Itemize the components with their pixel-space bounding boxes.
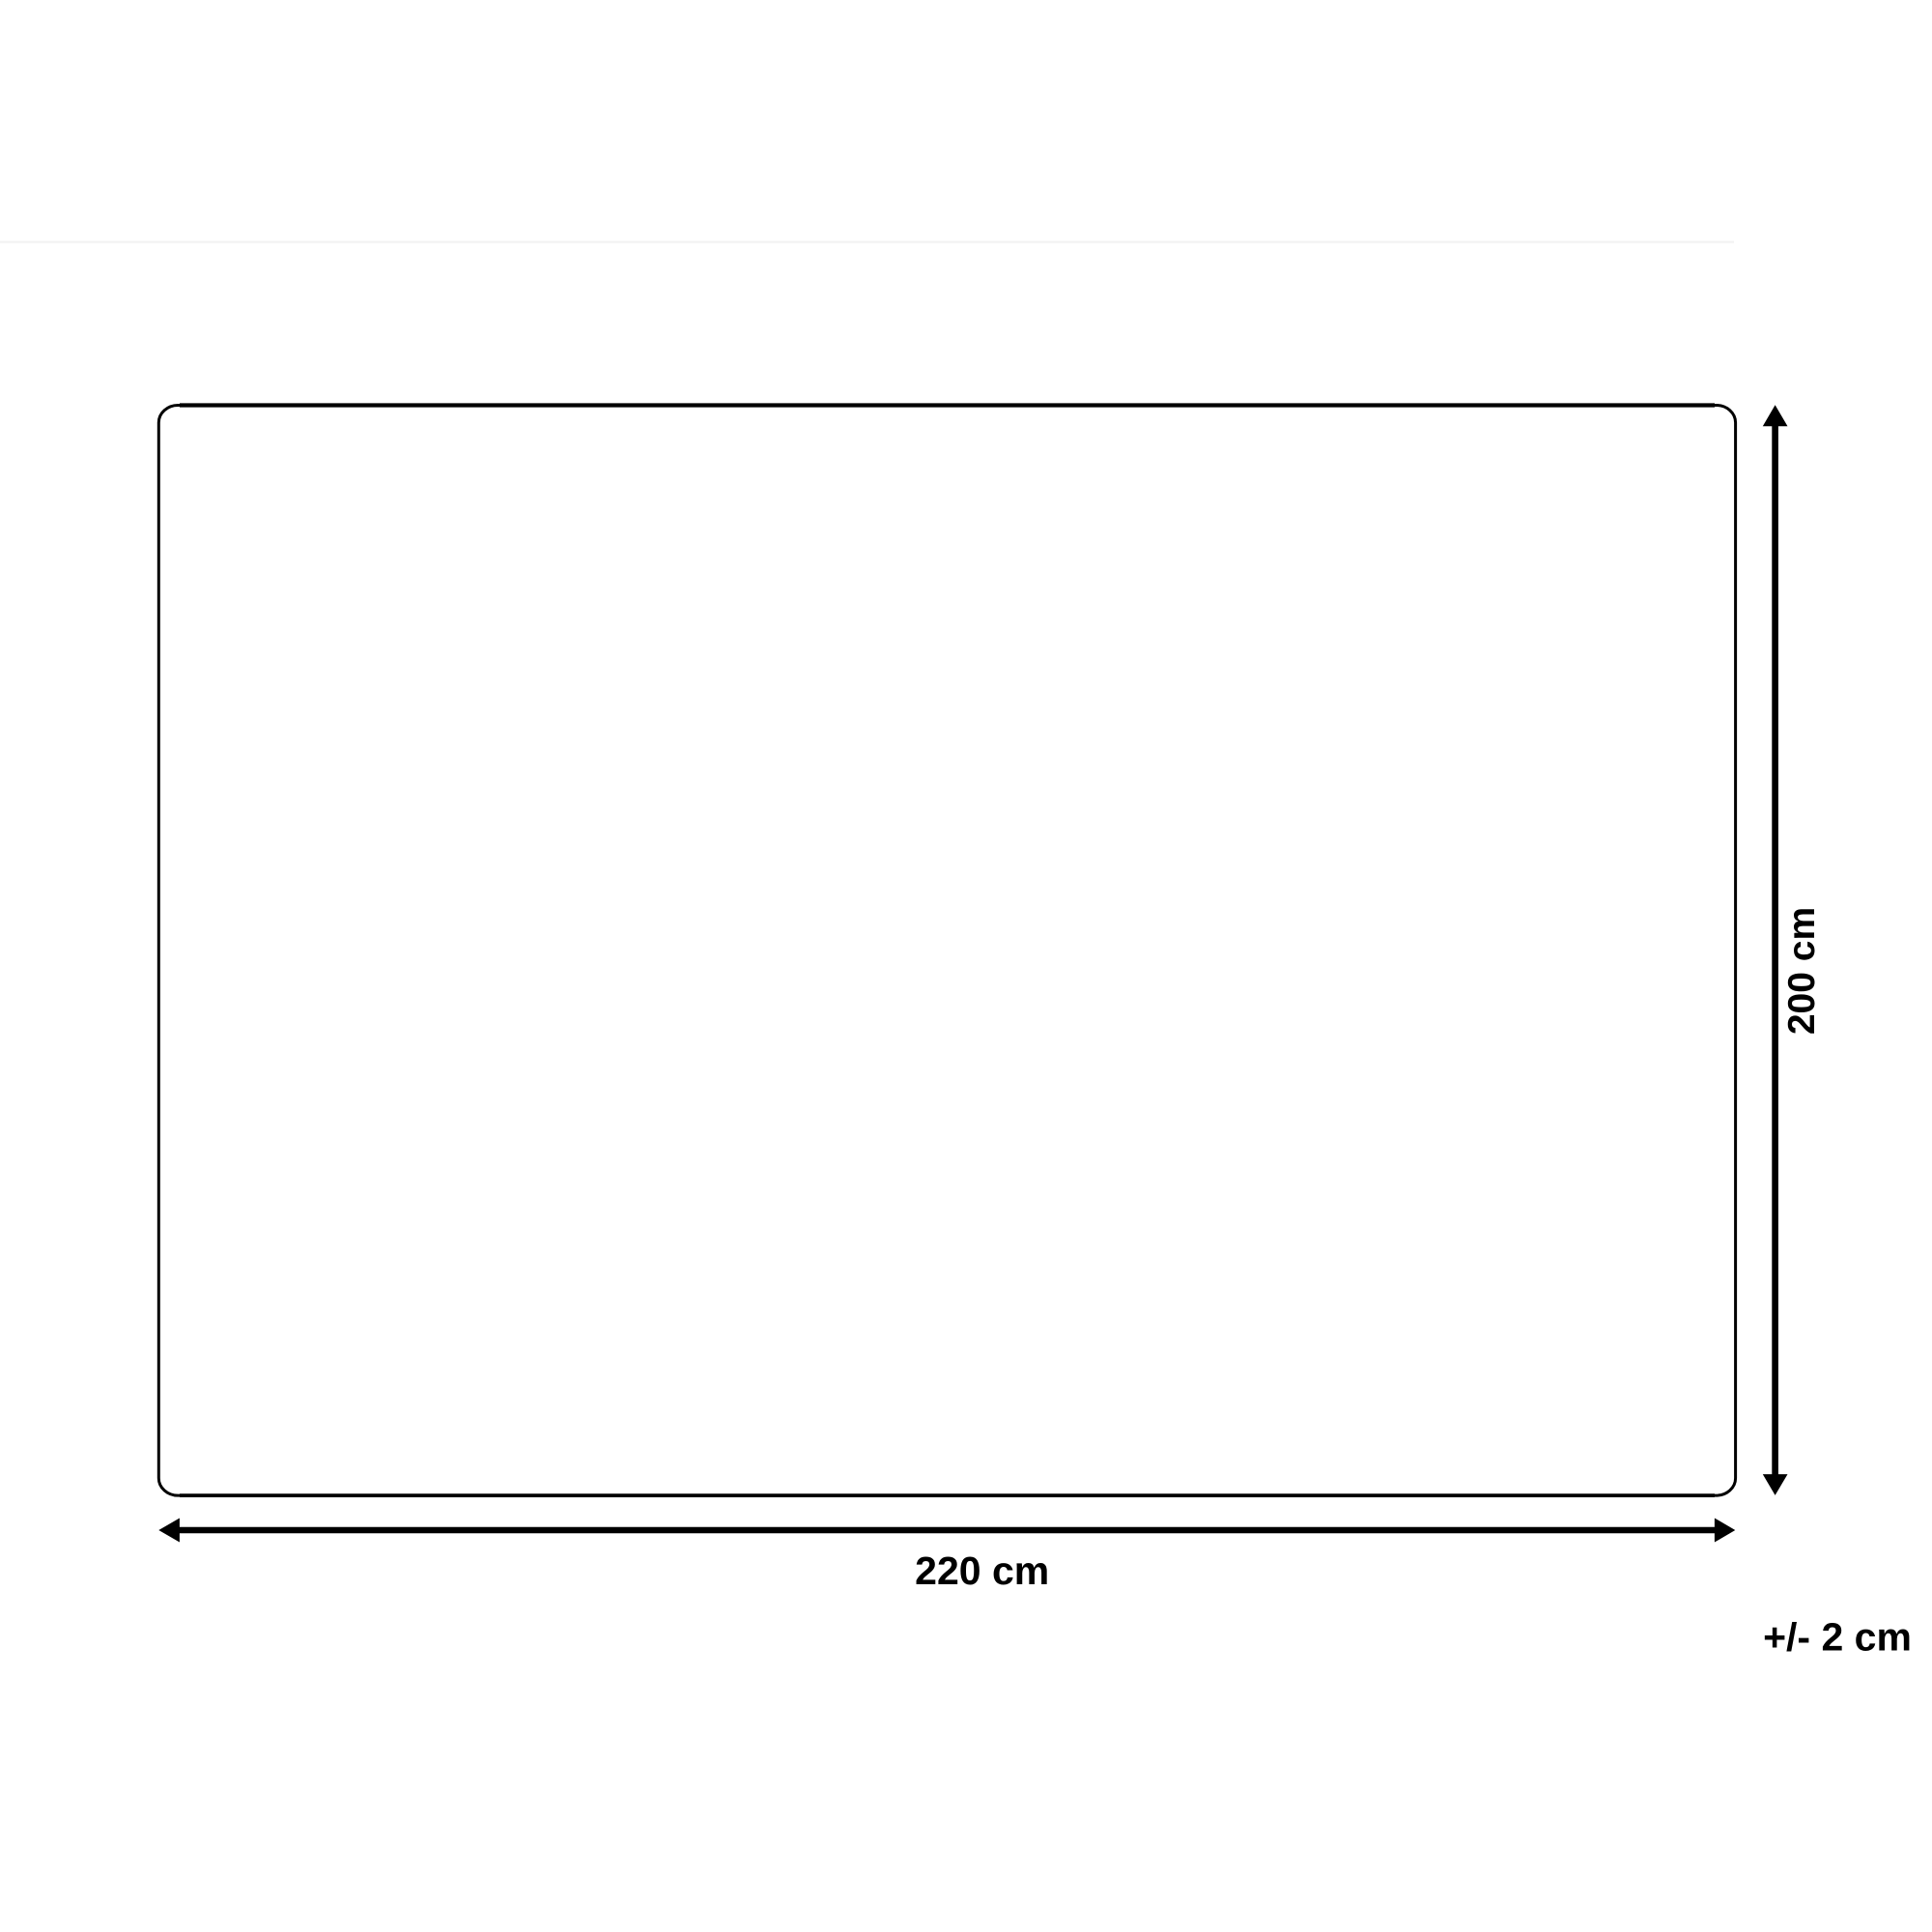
svg-text:200 cm: 200 cm <box>1781 907 1823 1035</box>
svg-text:+/- 2 cm: +/- 2 cm <box>1763 1614 1912 1659</box>
svg-text:220 cm: 220 cm <box>915 1548 1049 1593</box>
